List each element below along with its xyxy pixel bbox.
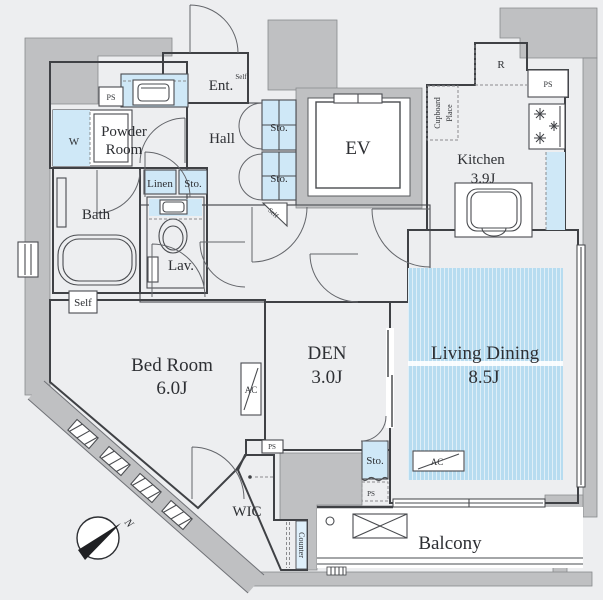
balcony-equipment xyxy=(353,514,407,538)
entrance-label: Ent. xyxy=(209,78,234,94)
kitchen-label: Kitchen xyxy=(457,152,505,168)
storage-label-3: Sto. xyxy=(184,178,202,190)
floor-plan-drawing: Ent. Self PS Powder Room W Hall Sto. Sto… xyxy=(0,0,603,600)
living-ac-label: AC xyxy=(431,457,444,467)
ps-label-topleft: PS xyxy=(107,93,116,102)
kitchen-side-counter xyxy=(546,152,565,230)
storage-label-2: Sto. xyxy=(270,173,288,185)
storage-label-4: Sto. xyxy=(366,455,384,467)
stove xyxy=(529,104,565,149)
elevator-label: EV xyxy=(345,138,371,159)
balcony-label: Balcony xyxy=(418,533,482,554)
living-window-right xyxy=(577,245,585,487)
entrance-self-label: Self xyxy=(235,73,247,81)
hanger-pipe-dot xyxy=(248,475,252,479)
concrete-core-block xyxy=(268,20,337,90)
den-label: DEN xyxy=(307,343,346,364)
kitchen-sink-counter xyxy=(455,183,532,237)
kitchen-size-label: 3.9J xyxy=(471,171,496,187)
floor-plan: Ent. Self PS Powder Room W Hall Sto. Sto… xyxy=(0,0,603,600)
balcony-vent xyxy=(327,567,346,575)
bedroom-ac-label: AC xyxy=(245,385,258,395)
den-ps-label: PS xyxy=(367,490,375,498)
concrete-bottom-strip xyxy=(248,572,592,586)
wic-label: WIC xyxy=(232,504,261,520)
cupboard-label-2: Place xyxy=(445,104,454,122)
wic-ps-label: PS xyxy=(268,443,276,451)
kitchen-ps-label: PS xyxy=(544,80,553,89)
counter-label: Counter xyxy=(297,532,306,558)
bath-window xyxy=(18,242,38,277)
lavatory-label: Lav. xyxy=(168,258,194,274)
lav-cabinet xyxy=(148,257,158,282)
washer-label: W xyxy=(69,136,80,148)
powder-room-label-1: Powder xyxy=(101,124,147,140)
sliding-door xyxy=(386,328,394,428)
powder-room-label-2: Room xyxy=(106,142,143,158)
living-dining-size-label: 8.5J xyxy=(468,367,499,388)
cupboard-label-1: Cupboard xyxy=(433,97,442,129)
bedroom-label: Bed Room xyxy=(131,355,213,376)
living-dining-label: Living Dining xyxy=(431,343,540,364)
living-window-bottom xyxy=(393,499,545,507)
linen-label: Linen xyxy=(147,178,173,190)
powder-vanity xyxy=(121,74,188,107)
refrigerator-label: R xyxy=(497,59,505,71)
bath-label: Bath xyxy=(82,207,111,223)
bedroom-size-label: 6.0J xyxy=(156,378,187,399)
storage-label-1: Sto. xyxy=(270,122,288,134)
den-size-label: 3.0J xyxy=(311,367,342,388)
bath-self-label: Self xyxy=(74,297,92,309)
hall-label: Hall xyxy=(209,131,235,147)
